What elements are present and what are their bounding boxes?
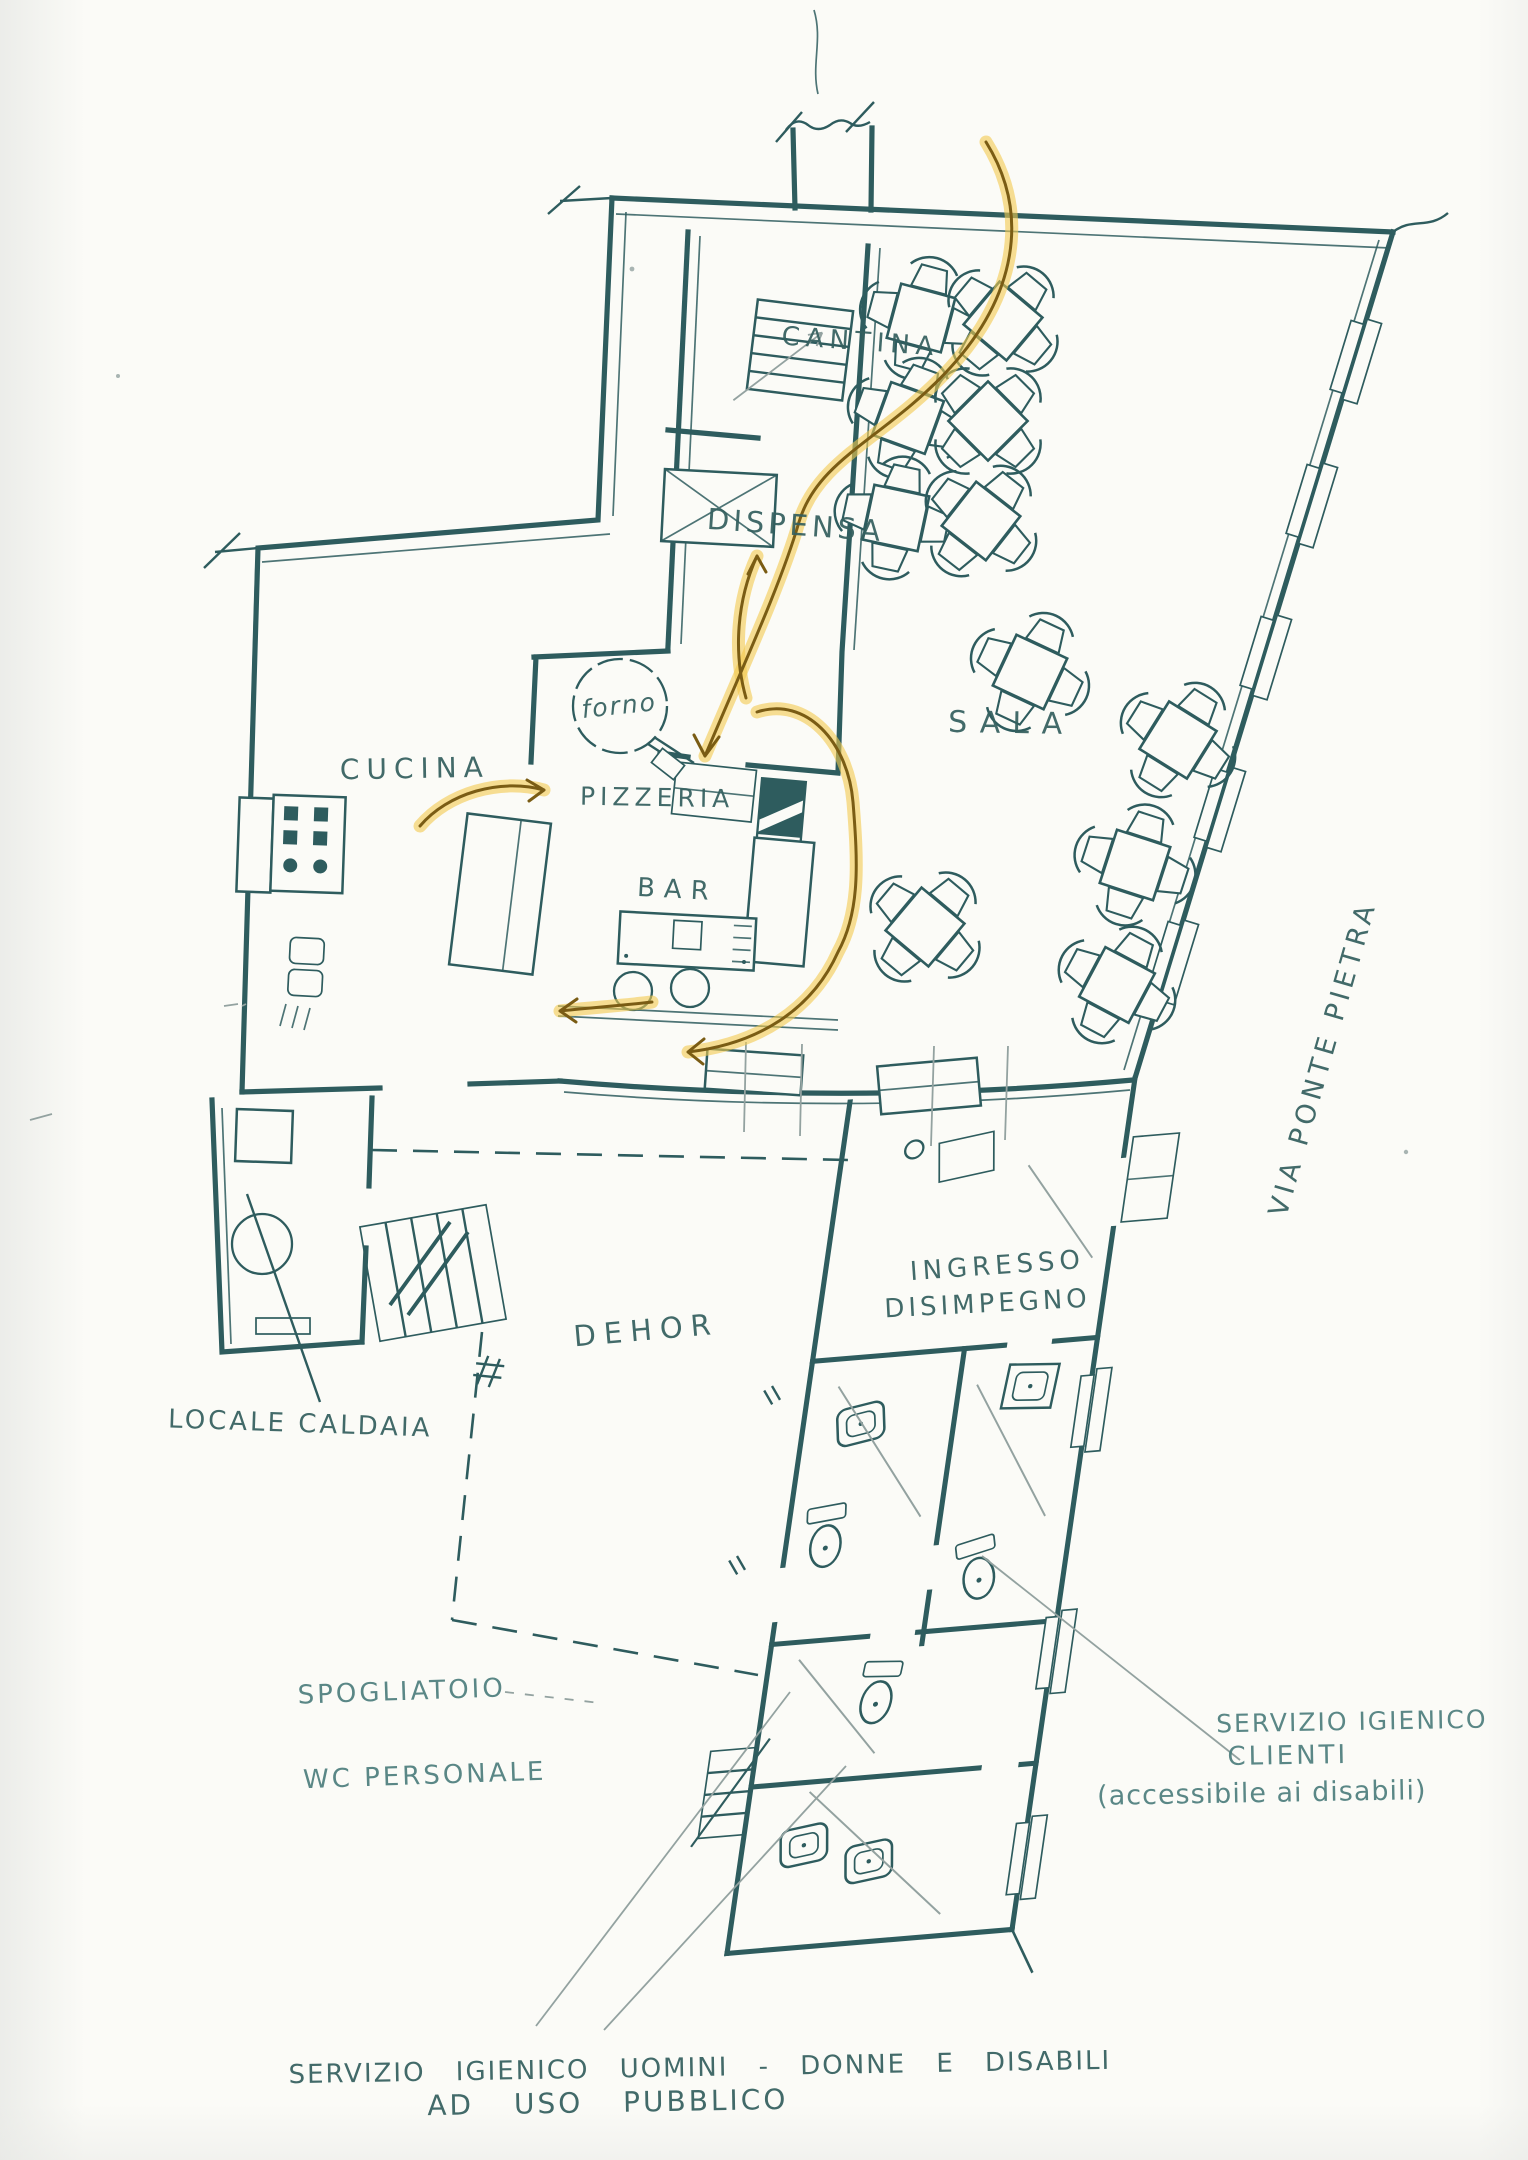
wing-external-stair [691,1739,770,1847]
scan-speck [1404,1150,1408,1154]
label-dehor: DEHOR [572,1307,720,1354]
scan-shadow-right [1478,0,1528,2160]
north-wall [612,198,1393,232]
dehor-window [705,1049,804,1096]
scan-speck [630,267,635,272]
north-wall-inner [616,214,1390,248]
corridor-plant [904,1140,925,1159]
label-via-ponte-pietra: VIA PONTE PIETRA [1263,897,1383,1220]
scan-shadow-left [0,0,85,2160]
label-disimpegno: DISIMPEGNO [884,1284,1092,1325]
south-wall-west [242,1081,560,1092]
chimney-walls [793,128,872,210]
bar-stool [671,969,709,1007]
west-wing-stub [204,533,258,568]
boiler [232,1214,292,1274]
cooker [270,795,345,893]
scanned-floor-plan: CANTINA DISPENSA SALA CUCINA forno PIZZE… [0,0,1528,2160]
label-forno: forno [580,687,658,724]
dehor-dashed-south [452,1620,758,1675]
kitchen-sink [288,937,325,997]
caldaia-leader-line [247,1194,320,1402]
hinge-ticks [729,1556,745,1574]
accessible-sink [1001,1364,1060,1408]
cantina-dispensa-wall [668,430,758,438]
label-locale-caldaia: LOCALE CALDAIA [168,1404,433,1443]
wc-divider-wall [922,1349,965,1644]
label-ingresso: INGRESSO [909,1245,1086,1287]
scan-speck [116,374,120,378]
label-servizio-clienti-1: SERVIZIO IGIENICO [1216,1705,1488,1739]
bar-counter [618,911,757,970]
sala-table [1057,787,1213,943]
corridor-door-threshold [877,1058,981,1115]
label-wc-personale: WC PERSONALE [303,1757,547,1795]
bathroom-wing [668,1074,1188,2004]
dehor-dashed-north [372,1150,848,1160]
pizzeria-counter [449,813,551,974]
chimney-leader-line [814,10,818,94]
label-bar: BAR [636,873,718,907]
corridor-cabinet [939,1131,994,1182]
external-stairs [360,1205,506,1341]
floor-plan-svg: CANTINA DISPENSA SALA CUCINA forno PIZZE… [0,0,1528,2160]
kitchen-fixtures [236,795,345,1030]
outer-walls [204,10,1448,1104]
label-sala: SALA [948,705,1075,742]
label-spogliatoio: SPOGLIATOIO [297,1673,506,1710]
pencil-leaders [30,1004,1240,2030]
washer [235,1109,293,1163]
wc-wall-3 [751,1763,1036,1787]
cantina-west-wall [668,232,688,646]
label-servizio-clienti-3: (accessibile ai disabili) [1097,1775,1427,1812]
label-cucina: CUCINA [340,751,491,787]
label-servizio-clienti-2: CLIENTI [1227,1740,1348,1772]
south-wall [560,1080,1133,1093]
sala-table [838,840,1013,1015]
west-wall-stub [548,186,612,214]
label-servizio-pubblico-2: AD USO PUBBLICO [427,2083,789,2122]
east-wall-stub [1393,213,1448,232]
stair-slash-marks [390,1222,468,1315]
boiler-room [212,1098,372,1352]
wing-south-wall [727,1929,1012,1953]
cantina-stairs [733,298,853,413]
chimney-top-wiggle [786,120,870,130]
label-pizzeria: PIZZERIA [580,782,735,814]
hinge-ticks [764,1386,780,1404]
wc-wall-2 [772,1621,1057,1645]
corridor-wall [813,1337,1098,1361]
